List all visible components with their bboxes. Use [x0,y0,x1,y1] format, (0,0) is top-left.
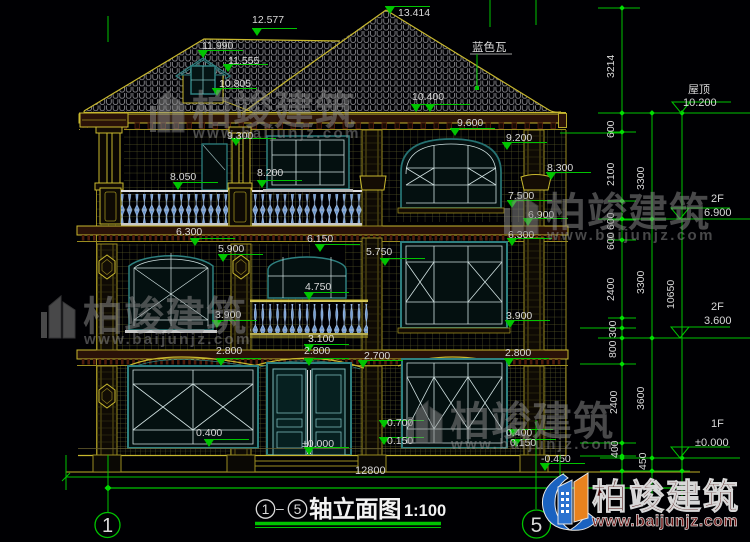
svg-text:9.600: 9.600 [457,117,483,129]
svg-text:2F: 2F [711,193,724,205]
svg-text:10.200: 10.200 [683,97,717,109]
svg-text:8.300: 8.300 [547,162,573,174]
svg-text:2.800: 2.800 [304,345,330,357]
svg-text:柏竣建筑: 柏竣建筑 [592,477,740,517]
svg-text:1:100: 1:100 [404,502,446,520]
svg-text:屋顶: 屋顶 [688,83,710,96]
svg-text:5: 5 [531,514,543,537]
svg-text:2.800: 2.800 [505,347,531,359]
svg-text:3214: 3214 [605,54,617,78]
svg-text:3.900: 3.900 [506,310,532,322]
svg-text:3.100: 3.100 [308,333,334,345]
svg-text:2.700: 2.700 [364,350,390,362]
svg-text:0.400: 0.400 [196,427,222,439]
svg-text:轴立面图: 轴立面图 [309,495,401,522]
svg-text:www.baijunjz.com: www.baijunjz.com [450,436,619,453]
svg-text:www.baijunjz.com: www.baijunjz.com [192,125,361,142]
svg-text:9.200: 9.200 [506,132,532,144]
svg-text:www.baijunjz.com: www.baijunjz.com [546,227,715,244]
svg-text:8.050: 8.050 [170,171,196,183]
svg-text:11.555: 11.555 [228,55,259,67]
svg-text:www.baijunjz.com: www.baijunjz.com [83,331,252,348]
svg-text:800: 800 [607,340,619,358]
svg-text:4.750: 4.750 [305,281,331,293]
svg-text:5: 5 [294,501,302,517]
svg-text:2100: 2100 [605,162,617,186]
svg-text:12.577: 12.577 [252,14,284,26]
svg-text:www.baijunjz.com: www.baijunjz.com [591,513,738,530]
svg-text:2F: 2F [711,301,724,313]
svg-text:8.200: 8.200 [257,167,283,179]
svg-text:1F: 1F [711,418,724,430]
svg-text:3600: 3600 [635,386,647,410]
svg-text:10.400: 10.400 [412,91,444,103]
svg-text:10650: 10650 [665,280,677,309]
svg-text:6.300: 6.300 [176,226,202,238]
svg-text:1: 1 [262,501,270,517]
svg-text:12800: 12800 [355,465,386,477]
svg-text:300: 300 [607,320,619,338]
svg-text:-0.450: -0.450 [541,453,571,465]
svg-text:±0.000: ±0.000 [302,438,334,450]
svg-text:3.600: 3.600 [704,315,732,327]
svg-text:3300: 3300 [635,166,647,190]
svg-text:5.750: 5.750 [366,246,392,258]
svg-text:2400: 2400 [605,277,617,301]
svg-text:±0.000: ±0.000 [695,437,729,449]
svg-text:3300: 3300 [635,270,647,294]
svg-text:5.900: 5.900 [218,243,244,255]
svg-text:450: 450 [637,452,649,470]
svg-text:600: 600 [605,120,617,138]
svg-text:13.414: 13.414 [398,7,430,19]
svg-text:11.990: 11.990 [202,40,233,52]
svg-text:1: 1 [102,515,113,537]
svg-text:6.150: 6.150 [307,233,333,245]
svg-text:蓝色瓦: 蓝色瓦 [472,40,507,54]
svg-text:–: – [276,500,284,516]
